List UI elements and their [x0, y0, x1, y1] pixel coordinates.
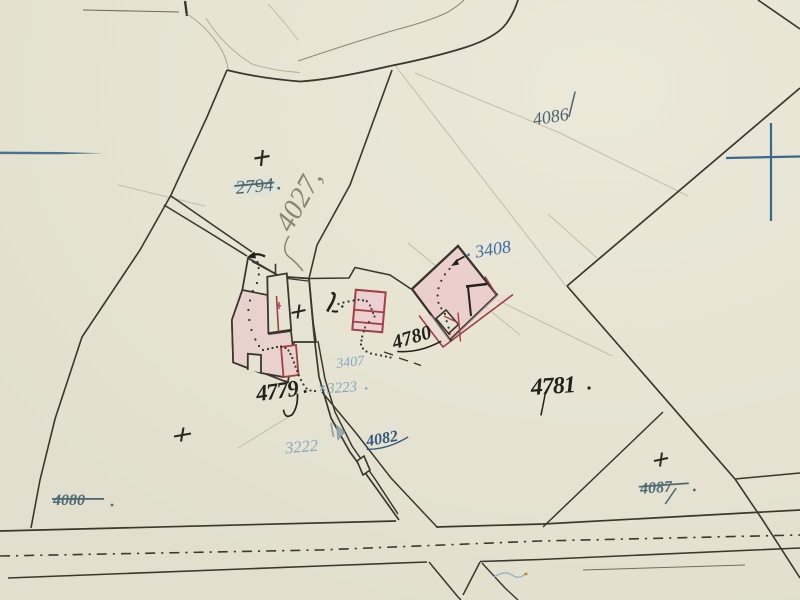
svg-text:3222: 3222 — [283, 436, 319, 458]
svg-text:4080: 4080 — [52, 492, 85, 509]
svg-text:3223: 3223 — [326, 379, 358, 397]
svg-text:4087: 4087 — [639, 478, 674, 497]
svg-text:2794: 2794 — [235, 175, 275, 199]
svg-text:4781: 4781 — [529, 372, 576, 401]
